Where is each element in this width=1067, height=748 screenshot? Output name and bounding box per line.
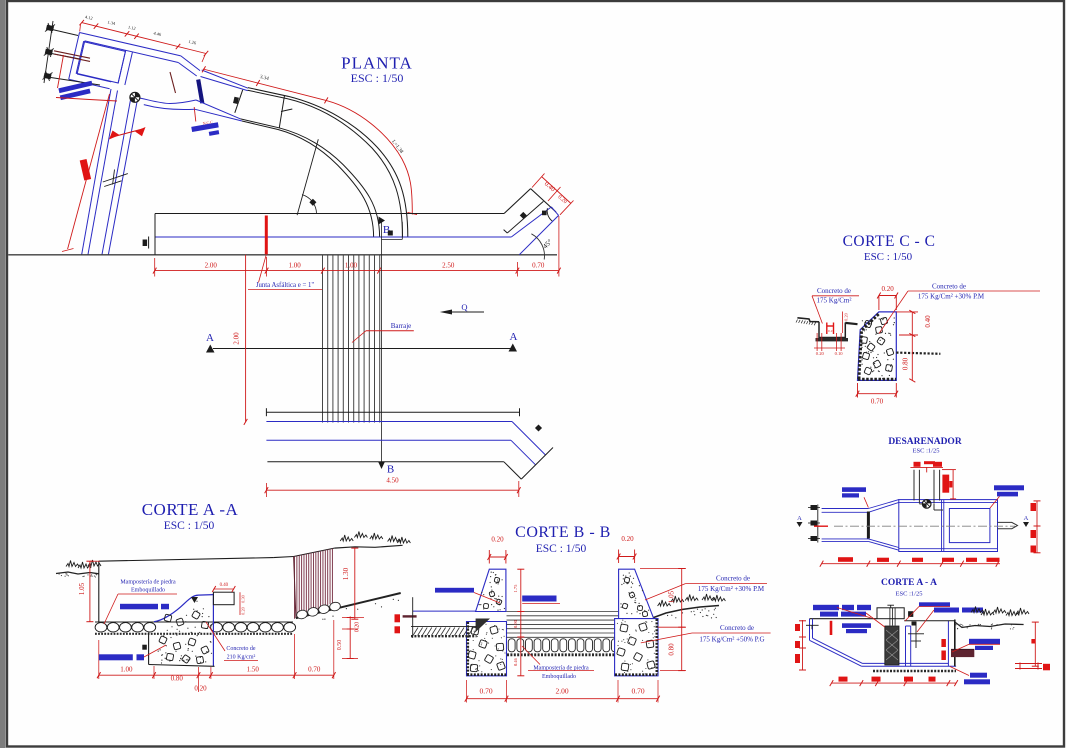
svg-text:0.20: 0.20: [491, 536, 504, 544]
svg-text:0.46: 0.46: [513, 657, 518, 666]
svg-text:Concreto de: Concreto de: [226, 646, 255, 652]
svg-text:4.50: 4.50: [386, 477, 399, 485]
svg-text:ESC :1/25: ESC :1/25: [913, 448, 940, 455]
svg-text:0.20: 0.20: [621, 535, 634, 543]
svg-text:210 Kg/cm²: 210 Kg/cm²: [227, 655, 256, 661]
svg-text:Q: Q: [461, 302, 467, 312]
svg-text:ESC : 1/50: ESC : 1/50: [864, 251, 913, 263]
svg-text:1.05: 1.05: [78, 582, 86, 595]
svg-text:Emboquillado: Emboquillado: [131, 588, 165, 594]
svg-text:0.20: 0.20: [816, 351, 825, 356]
svg-text:0.40: 0.40: [220, 583, 229, 588]
svg-text:A: A: [1024, 515, 1029, 522]
svg-text:1.30: 1.30: [342, 567, 350, 580]
svg-text:0.70: 0.70: [532, 261, 545, 269]
svg-text:PLANTA: PLANTA: [341, 54, 413, 73]
svg-text:Concreto de: Concreto de: [716, 575, 750, 583]
svg-text:Concreto de: Concreto de: [932, 283, 966, 291]
svg-text:CORTE A - A: CORTE A - A: [881, 578, 937, 588]
svg-text:B: B: [387, 464, 394, 476]
svg-text:A: A: [797, 515, 802, 522]
svg-text:0.90: 0.90: [513, 619, 518, 628]
svg-text:1.75: 1.75: [513, 584, 518, 593]
svg-text:1.00: 1.00: [288, 261, 301, 269]
svg-text:0.10: 0.10: [835, 351, 844, 356]
svg-text:0.70: 0.70: [308, 666, 321, 674]
svg-text:0.80: 0.80: [668, 643, 676, 656]
svg-text:0.20: 0.20: [241, 606, 246, 614]
svg-text:CORTE A -A: CORTE A -A: [142, 500, 239, 519]
svg-text:DESARENADOR: DESARENADOR: [888, 437, 962, 447]
svg-text:Junta Asfáltica e = 1": Junta Asfáltica e = 1": [256, 282, 315, 289]
svg-text:A: A: [206, 332, 214, 344]
svg-text:Concreto de: Concreto de: [720, 624, 754, 632]
svg-text:Concreto de: Concreto de: [817, 287, 851, 295]
svg-text:175 Kg/Cm² +30% P.M: 175 Kg/Cm² +30% P.M: [918, 293, 985, 301]
svg-text:ESC : 1/50: ESC : 1/50: [351, 71, 404, 85]
svg-text:Barraje: Barraje: [391, 322, 412, 330]
svg-text:0.20: 0.20: [881, 285, 894, 293]
svg-text:0.70: 0.70: [479, 687, 492, 696]
svg-text:1.05: 1.05: [668, 590, 676, 603]
svg-text:ESC : 1/50: ESC : 1/50: [164, 520, 215, 532]
svg-text:1.00: 1.00: [345, 261, 358, 269]
svg-text:0.70: 0.70: [631, 687, 644, 696]
svg-text:1.50: 1.50: [247, 666, 260, 674]
svg-text:0.30: 0.30: [241, 594, 246, 602]
svg-text:1.00: 1.00: [120, 666, 133, 674]
svg-text:0.20: 0.20: [194, 685, 207, 693]
svg-text:CORTE C - C: CORTE C - C: [843, 233, 936, 250]
svg-text:175 Kg/Cm² +50% P.G: 175 Kg/Cm² +50% P.G: [699, 636, 764, 644]
svg-text:Mampostería de piedra: Mampostería de piedra: [120, 580, 176, 586]
svg-text:175 Kg/Cm² +30% P.M: 175 Kg/Cm² +30% P.M: [698, 585, 765, 593]
svg-text:0.40: 0.40: [924, 315, 932, 328]
svg-text:0.80: 0.80: [171, 675, 184, 683]
svg-text:2.00: 2.00: [555, 687, 568, 696]
svg-text:ESC : 1/50: ESC : 1/50: [536, 543, 587, 555]
svg-text:A: A: [510, 331, 518, 343]
svg-text:2.50: 2.50: [442, 261, 455, 269]
svg-text:0.15: 0.15: [828, 329, 834, 333]
svg-text:ESC :1/25: ESC :1/25: [896, 591, 923, 598]
svg-text:0.20: 0.20: [355, 622, 361, 633]
svg-text:175 Kg/Cm²: 175 Kg/Cm²: [817, 297, 852, 305]
svg-text:2.00: 2.00: [233, 332, 241, 345]
svg-text:0.20: 0.20: [844, 312, 849, 320]
svg-text:0.80: 0.80: [902, 357, 910, 370]
svg-text:CORTE B - B: CORTE B - B: [515, 524, 611, 541]
svg-text:0.50: 0.50: [337, 640, 343, 651]
svg-text:0.70: 0.70: [871, 398, 884, 406]
svg-text:Emboquillado: Emboquillado: [542, 674, 576, 680]
svg-text:2.00: 2.00: [205, 261, 218, 269]
